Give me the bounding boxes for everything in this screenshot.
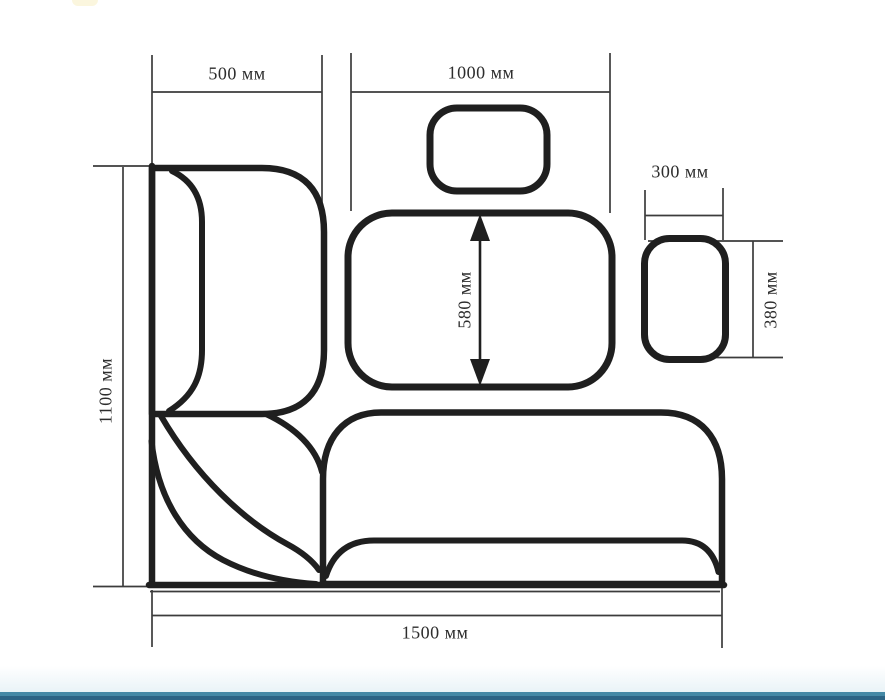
- footer-accent-bar-highlight: [0, 692, 885, 696]
- left-backrest-shape: [152, 168, 324, 414]
- side-cushion-shape: [645, 239, 726, 360]
- dim-label-height-total: 1100 мм: [96, 358, 117, 424]
- headrest-cushion-shape: [430, 108, 547, 191]
- corner-sofa-outline: [149, 108, 726, 585]
- corner-seat-top-curve: [161, 416, 319, 570]
- main-seat-outer: [323, 413, 722, 585]
- main-seat-shape: [323, 413, 722, 585]
- corner-seam-curve: [266, 414, 322, 472]
- dim-label-width-total: 1500 мм: [402, 623, 469, 644]
- left-backrest-outer: [152, 168, 324, 414]
- dimension-drawing-canvas: 500 мм 1000 мм 300 мм 380 мм 580 мм 1100…: [0, 0, 885, 700]
- dim-label-height-side-cushion: 380 мм: [761, 271, 782, 328]
- footer-fade: [0, 666, 885, 692]
- footer-accent-bar: [0, 692, 885, 700]
- dim-label-width-side-cushion: 300 мм: [651, 162, 708, 183]
- dim-label-width-main: 1000 мм: [448, 63, 515, 84]
- corner-sofa-technical-drawing: [0, 0, 885, 700]
- dim-label-width-left: 500 мм: [208, 64, 265, 85]
- corner-seat-front-curve: [152, 441, 317, 584]
- dim-label-height-backrest-cushion: 580 мм: [455, 271, 476, 328]
- corner-seat-shape: [152, 414, 323, 584]
